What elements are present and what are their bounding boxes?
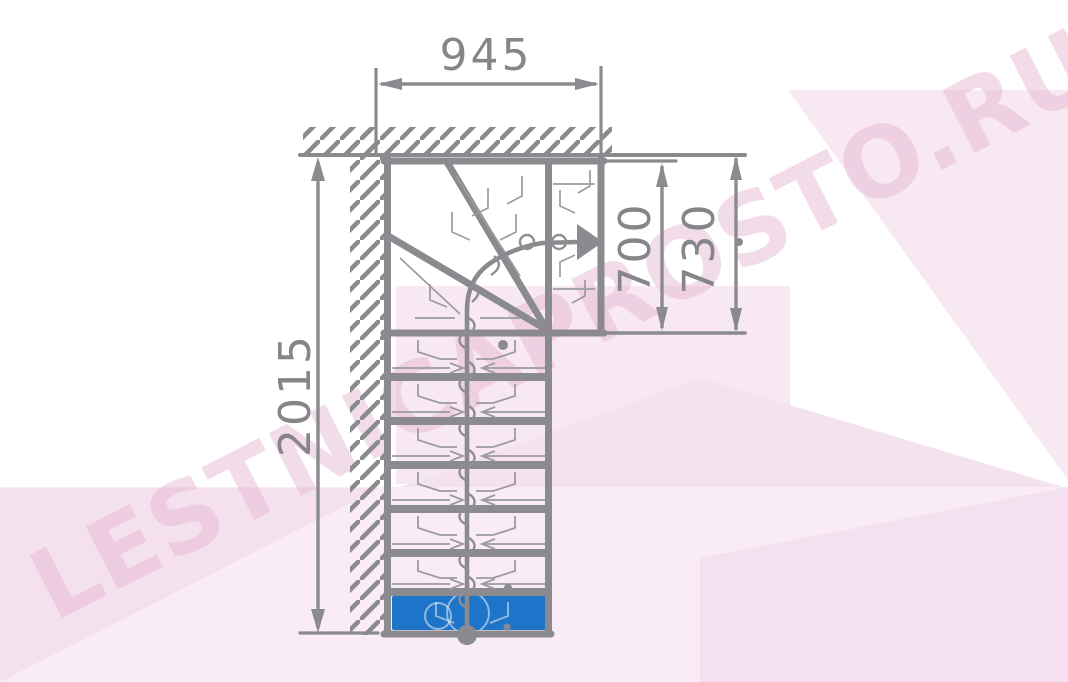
dim-945-label: 945 [440, 30, 533, 81]
dim-arrow-up [730, 156, 742, 180]
walkline-start-dot [457, 625, 477, 645]
stair-plan-svg: LESTNICAPROSTO.RU [0, 0, 1068, 682]
dim-arrow-left [378, 78, 402, 90]
dim-2015-label: 2015 [270, 333, 321, 457]
first-step-blue [392, 596, 547, 630]
dim-730-label: 730 [674, 202, 725, 295]
dim-700-label: 700 [610, 202, 661, 295]
wall-hatch-left [350, 127, 384, 635]
dim-arrow-up [311, 157, 325, 181]
dim-arrow-up [656, 163, 668, 187]
staircase-drawing-canvas: LESTNICAPROSTO.RU [0, 0, 1068, 682]
wall-hatch-top [303, 127, 612, 154]
dim-arrow-right [575, 78, 599, 90]
